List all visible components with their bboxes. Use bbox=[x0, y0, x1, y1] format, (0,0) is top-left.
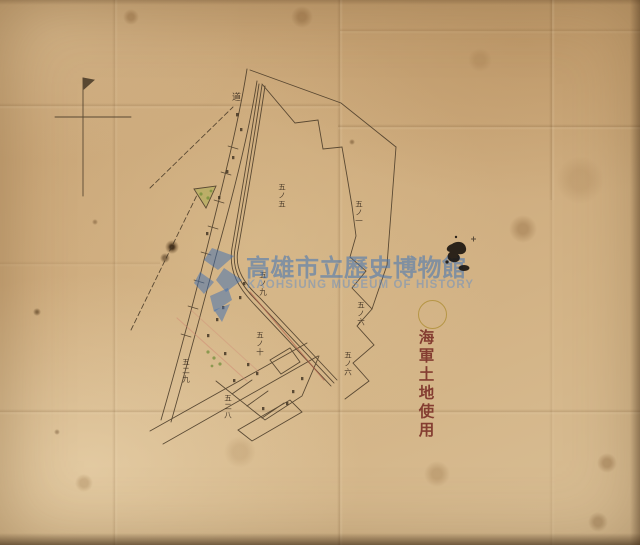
scan-edge-top bbox=[0, 0, 640, 5]
ink-blot bbox=[0, 0, 640, 545]
scan-edge-right bbox=[630, 0, 640, 545]
scan-edge-bottom bbox=[0, 533, 640, 545]
scanned-map-document: 道五ノ五五ノ一五ノ九五ノ十五ノ六五ノ六五二九五二八 高雄市立歷史博物館 KAOH… bbox=[0, 0, 640, 545]
